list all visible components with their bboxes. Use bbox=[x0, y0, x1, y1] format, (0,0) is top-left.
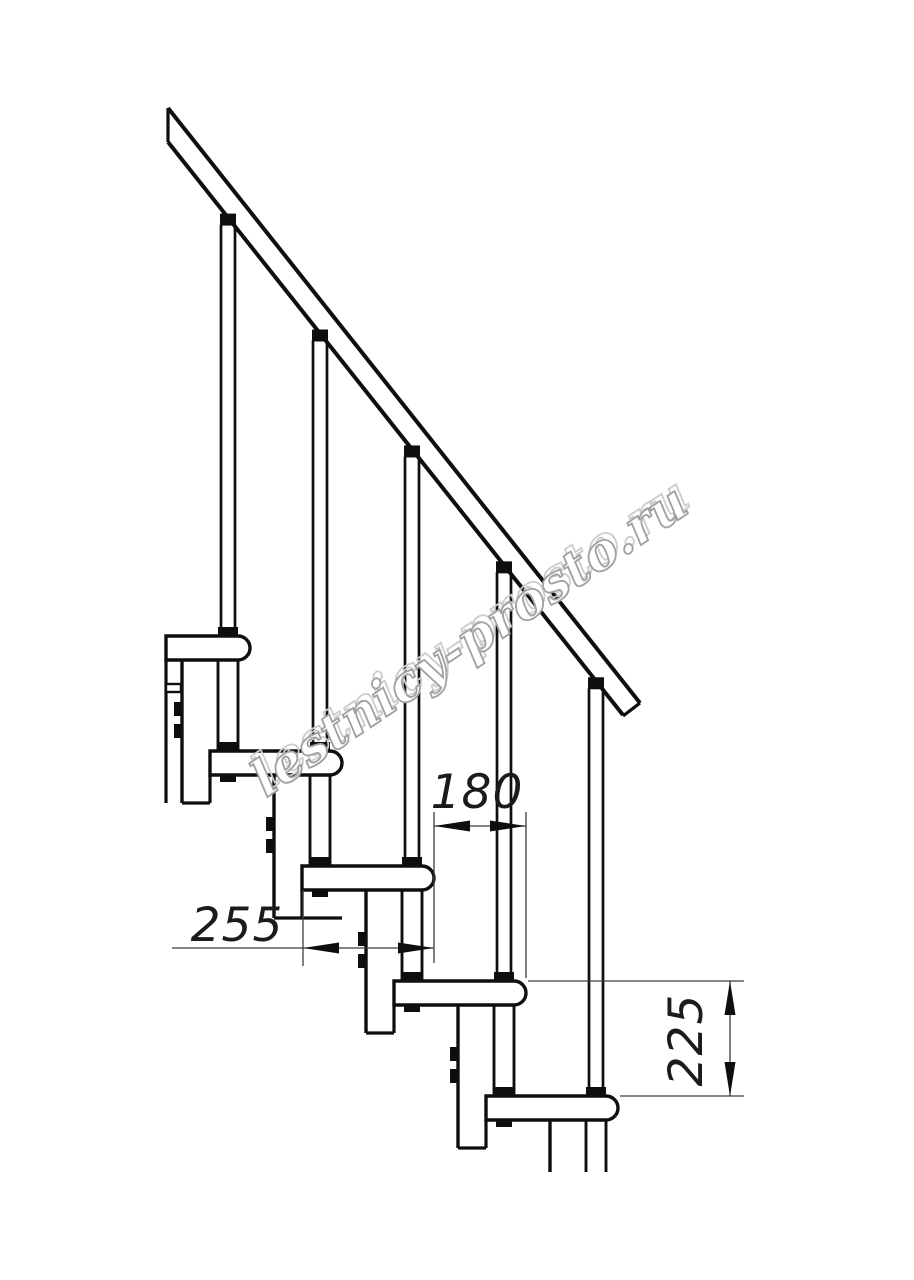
sleeve-foot-nut bbox=[220, 775, 236, 782]
baluster-rail-connector bbox=[404, 445, 420, 457]
baluster-rail-connector bbox=[220, 214, 236, 226]
dimension-going-value: 180 bbox=[431, 765, 524, 820]
wall-clip bbox=[450, 1047, 458, 1061]
sleeve-foot-nut bbox=[312, 890, 328, 897]
wall-clip bbox=[358, 932, 366, 946]
baluster-tread-connector bbox=[218, 627, 238, 636]
baluster-rail-connector bbox=[312, 330, 328, 342]
dimension-rise-value: 225 bbox=[659, 994, 714, 1087]
baluster-tread-connector bbox=[494, 972, 514, 981]
sleeve-foot-nut bbox=[404, 1005, 420, 1012]
baluster-tread-connector bbox=[402, 857, 422, 866]
dimension-tread-depth-value: 255 bbox=[191, 898, 284, 953]
drawing-sheet: lestnicy-prosto.ru lestnicy-prosto.ru 18… bbox=[0, 0, 914, 1280]
wall-clip bbox=[450, 1069, 458, 1083]
wall-clip bbox=[266, 839, 274, 853]
sleeve-foot-connector bbox=[218, 742, 238, 751]
wall-clip bbox=[266, 817, 274, 831]
sleeve-foot-nut bbox=[496, 1120, 512, 1127]
staircase-technical-drawing: lestnicy-prosto.ru lestnicy-prosto.ru 18… bbox=[0, 0, 914, 1280]
sleeve-foot-connector bbox=[494, 1087, 514, 1096]
baluster-tread-connector bbox=[586, 1087, 606, 1096]
sleeve-foot-connector bbox=[402, 972, 422, 981]
sleeve-foot-connector bbox=[310, 857, 330, 866]
cut-bracket-stub bbox=[166, 684, 181, 692]
baluster-rail-connector bbox=[588, 677, 604, 689]
wall-clip bbox=[358, 954, 366, 968]
wall-clip bbox=[174, 724, 182, 738]
wall-clip bbox=[174, 702, 182, 716]
